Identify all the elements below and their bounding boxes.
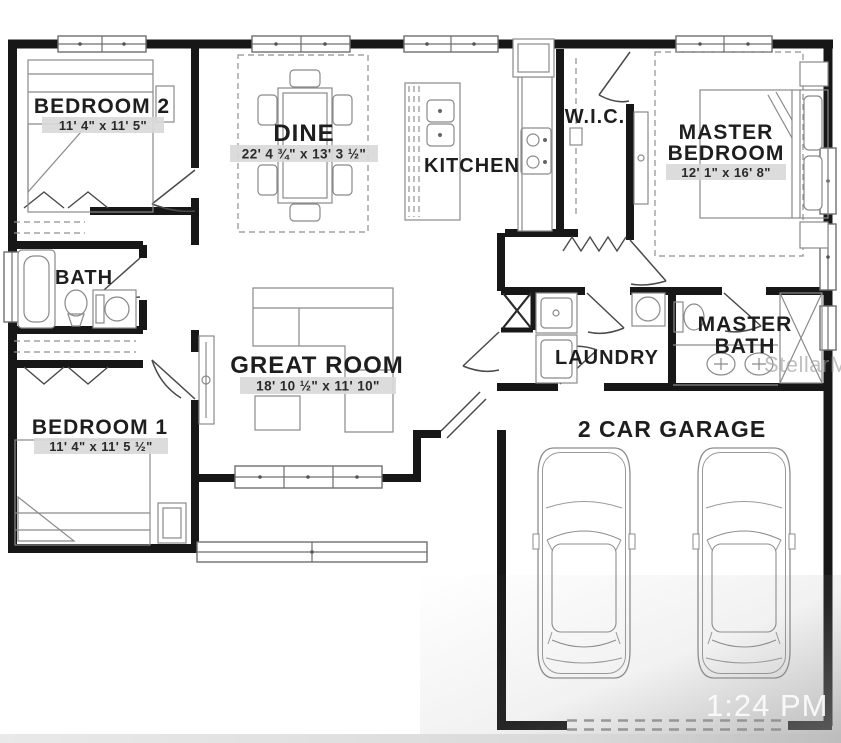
- floorplan-screenshot: BEDROOM 2 11' 4" x 11' 5" DINE 22' 4 ¾" …: [0, 0, 841, 743]
- wic-fixtures: [570, 58, 582, 216]
- dims-bedroom2: 11' 4" x 11' 5": [59, 118, 147, 133]
- window-master-top: [676, 36, 772, 52]
- label-bedroom1: BEDROOM 1: [32, 416, 168, 439]
- window-greatroom-south: [235, 466, 382, 488]
- stellar-mls-watermark: StellarMLS: [764, 352, 841, 377]
- dims-master-bedroom: 12' 1" x 16' 8": [681, 165, 771, 180]
- dims-dine: 22' 4 ¾" x 13' 3 ½": [242, 147, 366, 162]
- dims-bedroom1: 11' 4" x 11' 5 ½": [49, 439, 152, 454]
- door-mud-hall: [463, 332, 499, 371]
- label-bedroom2: BEDROOM 2: [34, 95, 170, 118]
- label-master-bedroom-1: MASTER: [679, 121, 774, 144]
- door-front-entry: [441, 392, 486, 438]
- door-bedroom2: [152, 170, 195, 211]
- window-bedroom2-top: [58, 36, 146, 52]
- label-laundry: LAUNDRY: [555, 347, 659, 369]
- window-kitchen-top: [404, 36, 498, 52]
- label-great-room: GREAT ROOM: [230, 352, 404, 379]
- window-dine-top: [252, 36, 350, 52]
- door-wic: [599, 52, 630, 102]
- label-wic: W.I.C.: [565, 106, 625, 128]
- bifold-zigzag-hall: [563, 237, 626, 251]
- label-master-bath-1: MASTER: [698, 313, 793, 336]
- label-kitchen: KITCHEN: [424, 155, 520, 177]
- floorplan-svg: BEDROOM 2 11' 4" x 11' 5" DINE 22' 4 ¾" …: [0, 0, 841, 743]
- bedroom1-furniture: [15, 440, 186, 545]
- phone-clock: 1:24 PM: [706, 688, 828, 723]
- kitchen-fixtures: [405, 39, 554, 231]
- door-bedroom1: [152, 360, 195, 399]
- window-lanai: [197, 542, 427, 562]
- photo-bottom-strip: [0, 734, 841, 743]
- label-master-bedroom-2: BEDROOM: [668, 142, 785, 165]
- laundry-fixtures: [503, 293, 577, 383]
- closet-chevrons-bedroom1: [24, 367, 108, 384]
- dims-great-room: 18' 10 ½" x 11' 10": [256, 379, 380, 394]
- label-bath: BATH: [55, 267, 113, 289]
- label-dine: DINE: [273, 120, 334, 147]
- label-garage: 2 CAR GARAGE: [578, 416, 766, 442]
- bedroom2-furniture: [28, 60, 174, 212]
- door-master-bedroom: [630, 240, 666, 285]
- closet-chevrons-bedroom2: [24, 192, 108, 208]
- door-laundry-hall: [587, 293, 624, 333]
